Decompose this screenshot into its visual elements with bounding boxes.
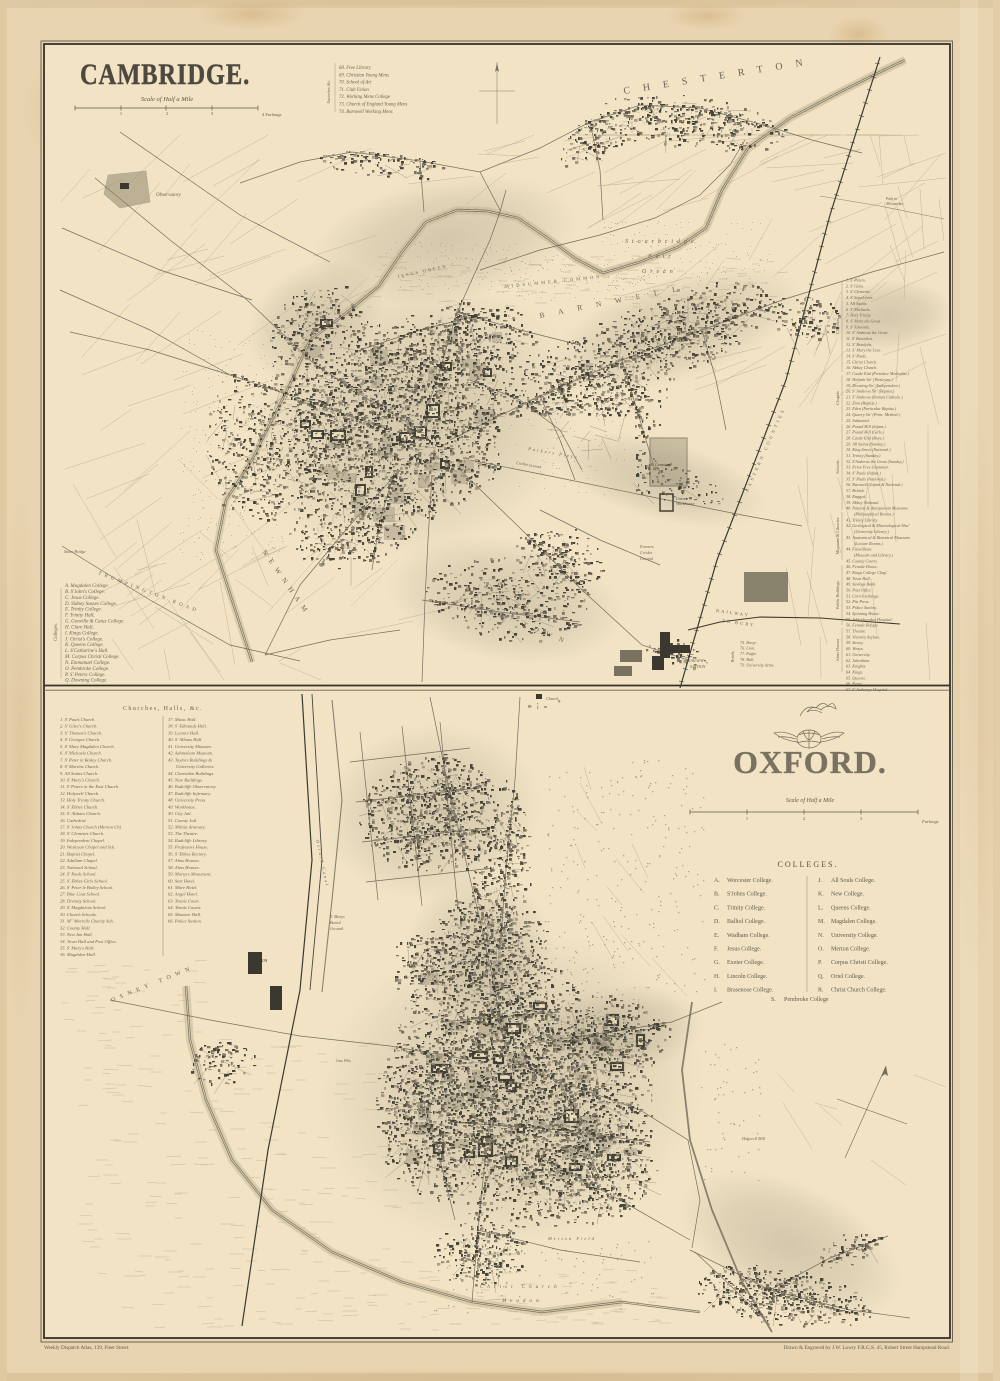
svg-text:F. Trinity Hall.: F. Trinity Hall. [64, 614, 95, 619]
svg-text:33. Perse Free Grammar.: 33. Perse Free Grammar. [846, 465, 889, 470]
svg-text:44. Clarendon Buildings.: 44. Clarendon Buildings. [168, 771, 214, 776]
svg-text:20. S' Andrews Str' (Baptist.): 20. S' Andrews Str' (Baptist.) [846, 389, 895, 394]
svg-text:Merton Field: Merton Field [547, 1236, 596, 1241]
svg-text:E.: E. [714, 933, 720, 939]
svg-text:51. Corn Exchange.: 51. Corn Exchange. [846, 593, 880, 598]
svg-text:35. S' Pauls (National.): 35. S' Pauls (National.) [846, 476, 886, 481]
svg-text:Meadow: Meadow [501, 1299, 543, 1304]
svg-text:7. S' Peter le Bailey Church.: 7. S' Peter le Bailey Church. [60, 757, 112, 762]
svg-text:28. Castle End (Boys.): 28. Castle End (Boys.) [846, 435, 884, 440]
svg-text:24. Quarry Str' (Prim: Method:: 24. Quarry Str' (Prim: Method:) [846, 412, 901, 417]
svg-text:29. S' Magdalens School.: 29. S' Magdalens School. [60, 905, 107, 910]
svg-text:5. All Saints.: 5. All Saints. [846, 301, 867, 306]
svg-text:34. Town Hall and Post Office.: 34. Town Hall and Post Office. [60, 939, 117, 944]
svg-text:30. King Street (National.): 30. King Street (National.) [846, 447, 891, 452]
svg-text:23. Eden (Particular Baptist.): 23. Eden (Particular Baptist.) [846, 406, 897, 411]
svg-text:16. Abbey Church.: 16. Abbey Church. [846, 365, 877, 370]
svg-text:Observatory: Observatory [156, 193, 182, 198]
svg-text:17. S' Johns Church (Merton Ch: 17. S' Johns Church (Merton Ch) [60, 825, 122, 830]
svg-text:S' Marys: S' Marys [330, 914, 345, 919]
svg-text:I. Kings College.: I. Kings College. [64, 631, 99, 636]
svg-text:Schools: Schools [835, 460, 840, 474]
svg-text:Public Buildings: Public Buildings [835, 581, 840, 609]
svg-text:56. S' Ebbes Rectory.: 56. S' Ebbes Rectory. [168, 851, 207, 856]
svg-text:53. Police Station.: 53. Police Station. [846, 605, 877, 610]
svg-text:4. S' Georges Church.: 4. S' Georges Church. [60, 737, 100, 742]
svg-text:52. Pitt Press.: 52. Pitt Press. [846, 599, 870, 604]
svg-text:Path to: Path to [885, 197, 897, 201]
svg-text:Pembroke College: Pembroke College [784, 997, 829, 1003]
svg-text:75. Hoop.: 75. Hoop. [740, 640, 757, 645]
svg-text:44. Fitzwilliam.: 44. Fitzwilliam. [846, 547, 872, 552]
svg-text:49. Savings Bank.: 49. Savings Bank. [846, 582, 876, 587]
svg-text:48. University Press.: 48. University Press. [168, 798, 206, 803]
svg-text:31. M'' Morrells Charity Sch.: 31. M'' Morrells Charity Sch. [60, 919, 114, 924]
svg-text:61. Mitre Hotel.: 61. Mitre Hotel. [168, 885, 197, 890]
svg-text:40. S' Albans Hall.: 40. S' Albans Hall. [168, 737, 202, 742]
svg-text:P. S' Peters College.: P. S' Peters College. [64, 673, 106, 678]
svg-text:5. S' Mary Magdalen Church.: 5. S' Mary Magdalen Church. [60, 744, 115, 749]
svg-text:2: 2 [166, 111, 168, 116]
svg-text:39. Lecture Hall.: 39. Lecture Hall. [168, 730, 199, 735]
svg-text:B. S'John's College.: B. S'John's College. [65, 590, 105, 595]
svg-text:33. New Inn Hall.: 33. New Inn Hall. [60, 932, 93, 937]
svg-text:57. Alms Houses.: 57. Alms Houses. [168, 858, 200, 863]
svg-text:71. Club Union: 71. Club Union [339, 88, 369, 93]
svg-text:65. Queens.: 65. Queens. [846, 675, 866, 680]
svg-text:79. University Arms.: 79. University Arms. [740, 662, 775, 667]
svg-text:Fair: Fair [647, 254, 675, 260]
svg-text:B.: B. [714, 892, 720, 898]
svg-text:59. Storey.: 59. Storey. [846, 640, 864, 645]
svg-text:1: 1 [120, 111, 122, 116]
svg-text:Cemetery: Cemetery [655, 462, 671, 467]
svg-text:Corpus Christi College.: Corpus Christi College. [831, 960, 888, 966]
svg-text:N.: N. [818, 933, 824, 939]
svg-text:60. Star Hotel.: 60. Star Hotel. [168, 878, 195, 883]
svg-text:22. Adullam Chapel.: 22. Adullam Chapel. [60, 858, 98, 863]
svg-text:23. National School.: 23. National School. [60, 865, 98, 870]
svg-text:A.: A. [714, 878, 720, 884]
svg-text:All Souls College.: All Souls College. [831, 878, 876, 884]
svg-text:D.: D. [714, 919, 720, 925]
svg-text:39. Abbey National.: 39. Abbey National. [846, 500, 879, 505]
svg-text:10. S' Andrews the Great.: 10. S' Andrews the Great. [846, 330, 889, 335]
svg-text:Gas Wks: Gas Wks [336, 1058, 351, 1063]
svg-text:Church: Church [546, 696, 558, 701]
svg-text:50. City Jail.: 50. City Jail. [168, 811, 192, 816]
svg-text:48. Town Hall.: 48. Town Hall. [846, 576, 871, 581]
svg-text:Jesus College.: Jesus College. [727, 947, 762, 953]
svg-text:Societies &c: Societies &c [326, 80, 331, 103]
svg-text:S'Johns College.: S'Johns College. [727, 892, 767, 898]
svg-text:F.: F. [714, 947, 719, 953]
svg-text:Fenners: Fenners [639, 544, 654, 549]
svg-text:Holywell Mill: Holywell Mill [741, 1136, 766, 1141]
svg-text:M.: M. [818, 919, 825, 925]
svg-text:32. County Hall.: 32. County Hall. [60, 925, 91, 930]
svg-text:Burial: Burial [330, 920, 342, 925]
svg-text:76. Lion.: 76. Lion. [740, 646, 755, 651]
svg-text:Churches: Churches [835, 318, 840, 334]
svg-text:I.: I. [714, 988, 718, 994]
svg-text:OXFORD.: OXFORD. [733, 744, 887, 780]
svg-text:64. Kings.: 64. Kings. [846, 670, 863, 675]
svg-text:Chapels: Chapels [835, 391, 840, 405]
svg-text:67. S' Anthonys Hospital.: 67. S' Anthonys Hospital. [846, 687, 888, 692]
svg-text:9. All Saints Church.: 9. All Saints Church. [60, 771, 98, 776]
svg-text:O. Pembroke College.: O. Pembroke College. [65, 667, 109, 672]
svg-text:15. Christ Church.: 15. Christ Church. [846, 359, 877, 364]
svg-text:D. Sidney Sussex College.: D. Sidney Sussex College. [64, 602, 117, 607]
svg-text:G.: G. [714, 960, 720, 966]
svg-text:4 Furlongs: 4 Furlongs [262, 112, 282, 117]
svg-text:11. S' Benedicts.: 11. S' Benedicts. [846, 336, 873, 341]
svg-text:63. Tennis Court.: 63. Tennis Court. [168, 898, 200, 903]
svg-text:STATION: STATION [252, 958, 268, 963]
svg-text:47. Kings College Chap'.: 47. Kings College Chap'. [846, 570, 888, 575]
svg-text:12. S' Botolphs.: 12. S' Botolphs. [846, 342, 872, 347]
svg-text:Scale of Half a Mile: Scale of Half a Mile [786, 797, 835, 804]
svg-text:12. Holywell Church.: 12. Holywell Church. [60, 791, 99, 796]
svg-text:29. All Saints (Sunday.): 29. All Saints (Sunday.) [846, 441, 886, 446]
svg-text:Merton College.: Merton College. [831, 947, 871, 953]
svg-text:Wadham College.: Wadham College. [727, 933, 770, 939]
svg-text:51. County Jail.: 51. County Jail. [168, 818, 197, 823]
svg-text:2. S' Giles.: 2. S' Giles. [846, 283, 864, 288]
svg-text:Ground: Ground [330, 926, 344, 931]
svg-text:Stone Bridge: Stone Bridge [64, 549, 86, 554]
svg-text:Q.: Q. [818, 974, 824, 980]
svg-text:14. S' Pauls.: 14. S' Pauls. [846, 354, 867, 359]
svg-text:66. Police Station.: 66. Police Station. [168, 919, 202, 924]
svg-text:CAMBRIDGE.: CAMBRIDGE. [80, 58, 250, 91]
svg-text:Alms Houses: Alms Houses [835, 638, 840, 661]
svg-text:COLLEGES.: COLLEGES. [778, 860, 839, 869]
svg-text:6. S' Michaels Church.: 6. S' Michaels Church. [60, 751, 102, 756]
svg-text:54. Spinning House.: 54. Spinning House. [846, 611, 880, 616]
svg-text:49. Workhouse.: 49. Workhouse. [168, 804, 196, 809]
svg-text:P.: P. [818, 960, 823, 966]
svg-text:N. Emmanuel College.: N. Emmanuel College. [64, 661, 110, 666]
svg-text:25. Industrial.: 25. Industrial. [846, 418, 870, 423]
svg-text:University Galleries.: University Galleries. [176, 764, 215, 769]
svg-text:24. S' Pauls School.: 24. S' Pauls School. [60, 872, 97, 877]
svg-text:70. School of Art: 70. School of Art [339, 81, 372, 86]
svg-text:38. S' Edmunds Hall.: 38. S' Edmunds Hall. [168, 724, 207, 729]
svg-text:64. Tennis Courts.: 64. Tennis Courts. [168, 905, 202, 910]
svg-text:54. Radcliffe Library.: 54. Radcliffe Library. [168, 838, 208, 843]
svg-text:61. University.: 61. University. [846, 652, 871, 657]
svg-text:77. Eagle.: 77. Eagle. [740, 651, 757, 656]
svg-text:41. Trinity Library.: 41. Trinity Library. [846, 517, 878, 522]
svg-text:6. S' Michaels.: 6. S' Michaels. [846, 307, 871, 312]
svg-text:13. S' Mary the Less.: 13. S' Mary the Less. [846, 348, 881, 353]
svg-text:42. Geological & Mineralogical: 42. Geological & Mineralogical Mus' [846, 523, 909, 528]
svg-text:18. Hobson Str' (Wesleyan.): 18. Hobson Str' (Wesleyan.) [846, 377, 893, 382]
svg-text:Weekly Dispatch Atlas, 139, Fl: Weekly Dispatch Atlas, 139, Fleet Street… [44, 1345, 129, 1351]
svg-text:19. Downing Str' (Independent.: 19. Downing Str' (Independent.) [846, 383, 901, 388]
svg-text:62. Jakenham.: 62. Jakenham. [846, 658, 870, 663]
svg-text:Ground: Ground [640, 556, 654, 561]
svg-text:60. Wrays.: 60. Wrays. [846, 646, 864, 651]
svg-text:Queens College.: Queens College. [831, 905, 871, 911]
svg-text:3. S' Thomas's Church.: 3. S' Thomas's Church. [60, 730, 102, 735]
svg-text:47. Radcliffe Infirmary.: 47. Radcliffe Infirmary. [168, 791, 211, 796]
svg-text:20. Wesleyan Chapel and Sch.: 20. Wesleyan Chapel and Sch. [60, 845, 115, 850]
svg-text:L. S'Catharine's Hall.: L. S'Catharine's Hall. [64, 649, 109, 654]
svg-text:28. Divinity School.: 28. Divinity School. [60, 898, 97, 903]
svg-text:74. Barnwell Working Mens: 74. Barnwell Working Mens [339, 110, 393, 115]
svg-text:Drawn & Engraved by J.W. Lowry: Drawn & Engraved by J.W. Lowry F.R.G.S. … [784, 1345, 950, 1351]
svg-text:Trinity College.: Trinity College. [727, 905, 766, 911]
svg-text:S.: S. [771, 997, 776, 1003]
svg-text:Christ Church: Christ Church [480, 1285, 561, 1290]
svg-text:1. S' Pauls Church.: 1. S' Pauls Church. [60, 717, 95, 722]
svg-text:(University Library.): (University Library.) [854, 529, 889, 534]
svg-text:43. Anatomical & Botanical Mus: 43. Anatomical & Botanical Museums [846, 535, 910, 540]
svg-text:L.: L. [818, 905, 824, 911]
svg-text:58. Victoria Asylum.: 58. Victoria Asylum. [846, 634, 880, 639]
svg-text:30. Church Schools.: 30. Church Schools. [60, 912, 97, 917]
svg-text:31. Trinity (Sunday.): 31. Trinity (Sunday.) [846, 453, 881, 458]
svg-text:7. Holy Trinity.: 7. Holy Trinity. [846, 313, 871, 318]
svg-text:65. Masonic Hall.: 65. Masonic Hall. [168, 912, 201, 917]
svg-text:22. Zion (Baptist.): 22. Zion (Baptist.) [846, 400, 877, 405]
svg-text:Cricket: Cricket [640, 550, 653, 555]
svg-text:27. Blue Coat School.: 27. Blue Coat School. [60, 892, 100, 897]
svg-text:K. Queens College.: K. Queens College. [64, 643, 104, 648]
svg-text:45. County Courts.: 45. County Courts. [846, 558, 878, 563]
svg-text:1: 1 [746, 816, 748, 821]
svg-text:Brasenose College.: Brasenose College. [727, 988, 774, 994]
svg-text:R.: R. [818, 988, 824, 994]
svg-text:(Museum and Library.): (Museum and Library.) [854, 553, 894, 558]
svg-text:Museums & Libraries: Museums & Libraries [835, 517, 840, 554]
svg-text:1. S' Peters.: 1. S' Peters. [846, 278, 866, 283]
svg-text:8. S' Martins Church.: 8. S' Martins Church. [60, 764, 99, 769]
svg-text:16. Cathedral.: 16. Cathedral. [60, 818, 87, 823]
svg-text:C. Jesus College.: C. Jesus College. [65, 596, 100, 601]
svg-text:2. S' Giles's Church.: 2. S' Giles's Church. [60, 724, 97, 729]
svg-text:52. Militia Armoury.: 52. Militia Armoury. [168, 825, 206, 830]
svg-text:55. Addenbrookes Hospital.: 55. Addenbrookes Hospital. [846, 617, 893, 622]
svg-text:43. Taylors Buildings &: 43. Taylors Buildings & [168, 757, 212, 762]
svg-text:66. Perse.: 66. Perse. [846, 681, 863, 686]
svg-text:(Lecture Rooms.): (Lecture Rooms.) [854, 541, 884, 546]
svg-text:62. Angel Hotel.: 62. Angel Hotel. [168, 892, 198, 897]
svg-text:University College.: University College. [831, 933, 878, 939]
svg-text:Oriel College.: Oriel College. [831, 974, 865, 980]
svg-text:Worcester College.: Worcester College. [727, 878, 773, 884]
svg-text:STATION: STATION [690, 664, 706, 669]
svg-text:New College.: New College. [831, 892, 864, 898]
svg-text:3. S' Clements.: 3. S' Clements. [846, 289, 871, 294]
svg-text:27. Pound Hill (Girls.): 27. Pound Hill (Girls.) [846, 430, 885, 435]
svg-text:72. Working Mens College: 72. Working Mens College [339, 95, 391, 100]
svg-text:G. Gonville & Caius College.: G. Gonville & Caius College. [65, 620, 124, 625]
svg-text:Workhouse: Workhouse [676, 501, 695, 506]
svg-text:H. Clare Hall.: H. Clare Hall. [64, 625, 94, 630]
svg-text:13. Holy Trinity Church.: 13. Holy Trinity Church. [60, 798, 105, 803]
svg-text:45. New Buildings.: 45. New Buildings. [168, 778, 203, 783]
svg-text:(Philosophical Rooms.): (Philosophical Rooms.) [854, 512, 894, 517]
svg-text:15. S' Aldates Church.: 15. S' Aldates Church. [60, 811, 101, 816]
svg-text:32. S'Andrews the Great (Sunda: 32. S'Andrews the Great (Sunday.) [846, 459, 904, 464]
svg-text:Newmarket: Newmarket [885, 202, 904, 206]
svg-text:56. Female Refuge.: 56. Female Refuge. [846, 623, 879, 628]
svg-text:55. Professors House.: 55. Professors House. [168, 845, 208, 850]
svg-text:Exeter College.: Exeter College. [727, 960, 765, 966]
svg-text:57. Theatre.: 57. Theatre. [846, 629, 866, 634]
svg-text:H.: H. [714, 974, 720, 980]
svg-text:Furlongs: Furlongs [921, 819, 939, 824]
svg-text:Lincoln College.: Lincoln College. [727, 974, 768, 980]
svg-text:14. S' Ebbes Church.: 14. S' Ebbes Church. [60, 804, 98, 809]
svg-text:18. S' Clements Church.: 18. S' Clements Church. [60, 831, 104, 836]
svg-text:53. The Theatre.: 53. The Theatre. [168, 831, 198, 836]
svg-text:2: 2 [803, 816, 805, 821]
svg-text:58. Alms Houses.: 58. Alms Houses. [168, 865, 200, 870]
svg-text:Hotels: Hotels [730, 651, 735, 662]
svg-text:Scale of Half a Mile: Scale of Half a Mile [141, 96, 193, 103]
svg-text:C.: C. [714, 905, 720, 911]
svg-text:4. S' Sepulchres.: 4. S' Sepulchres. [846, 295, 874, 300]
svg-text:78. Bull.: 78. Bull. [740, 657, 754, 662]
svg-text:21. S' Andrews (Roman Catholic: 21. S' Andrews (Roman Catholic.) [846, 395, 904, 400]
svg-text:10. S' Mary's Church.: 10. S' Mary's Church. [60, 778, 100, 783]
svg-text:O.: O. [818, 947, 824, 953]
svg-text:59. Martyrs Monument.: 59. Martyrs Monument. [168, 872, 212, 877]
svg-text:36. Magdalen Hall.: 36. Magdalen Hall. [60, 952, 96, 957]
svg-text:46. Radcliffe Observatory.: 46. Radcliffe Observatory. [168, 784, 217, 789]
svg-text:40. Natural & Antiquarian Muse: 40. Natural & Antiquarian Museums [846, 506, 908, 511]
svg-text:36. Barnwell (Infant & Nationa: 36. Barnwell (Infant & National.) [846, 482, 903, 487]
svg-text:73. Church of England Young M: 73. Church of England Young Mens [339, 103, 408, 108]
svg-text:21. Baptist Chapel.: 21. Baptist Chapel. [60, 851, 95, 856]
svg-text:8. S' Mary the Great.: 8. S' Mary the Great. [846, 318, 881, 323]
svg-text:Churches, Halls, &c.: Churches, Halls, &c. [123, 706, 203, 712]
svg-text:Magdalen College.: Magdalen College. [831, 919, 877, 925]
svg-text:Christ Church College.: Christ Church College. [831, 988, 887, 994]
svg-text:Green: Green [642, 269, 677, 275]
svg-text:68. Free Library: 68. Free Library [339, 66, 372, 71]
svg-text:RAILWAY: RAILWAY [687, 658, 705, 663]
svg-text:34. S' Pauls (Infant.): 34. S' Pauls (Infant.) [846, 471, 881, 476]
svg-text:Balliol College.: Balliol College. [727, 919, 765, 925]
svg-text:37. British.: 37. British. [846, 488, 865, 493]
svg-text:69. Christian Young Mens: 69. Christian Young Mens [339, 73, 389, 78]
svg-text:Stourbridge: Stourbridge [625, 239, 698, 245]
svg-text:A. Magdalen College.: A. Magdalen College. [64, 584, 109, 589]
svg-text:Q. Downing College.: Q. Downing College. [65, 679, 108, 684]
svg-text:M. Corpus Christi College.: M. Corpus Christi College. [64, 655, 120, 660]
svg-text:41. University Museum.: 41. University Museum. [168, 744, 212, 749]
svg-text:17. Castle End (Primitive Meth: 17. Castle End (Primitive Methodist.) [846, 371, 910, 376]
svg-text:K.: K. [818, 892, 824, 898]
svg-text:Colleges.: Colleges. [54, 623, 59, 641]
svg-text:9. S' Edwards.: 9. S' Edwards. [846, 324, 870, 329]
svg-text:38. Ragged.: 38. Ragged. [846, 494, 866, 499]
svg-text:37. Music Hall.: 37. Music Hall. [168, 717, 197, 722]
svg-text:35. S' Mary's Hall.: 35. S' Mary's Hall. [60, 946, 95, 951]
svg-text:25. S' Ebbes Girls School.: 25. S' Ebbes Girls School. [60, 878, 108, 883]
svg-text:26. Pound Hill (Infant.): 26. Pound Hill (Infant.) [846, 424, 886, 429]
svg-text:50. Post Office.: 50. Post Office. [846, 588, 872, 593]
svg-text:11. S' Peters in the East Chur: 11. S' Peters in the East Church. [60, 784, 119, 789]
svg-text:63. Knights.: 63. Knights. [846, 664, 866, 669]
svg-text:J.: J. [818, 878, 822, 884]
svg-text:26. S' Peter le Bailey School.: 26. S' Peter le Bailey School. [60, 885, 113, 890]
svg-text:J. Christ's College.: J. Christ's College. [65, 637, 103, 642]
svg-text:42. Ashmolean Museum.: 42. Ashmolean Museum. [168, 751, 213, 756]
svg-text:E. Trinity College.: E. Trinity College. [64, 608, 102, 613]
svg-text:46. Female House.: 46. Female House. [846, 564, 878, 569]
svg-text:19. Independent Chapel.: 19. Independent Chapel. [60, 838, 105, 843]
